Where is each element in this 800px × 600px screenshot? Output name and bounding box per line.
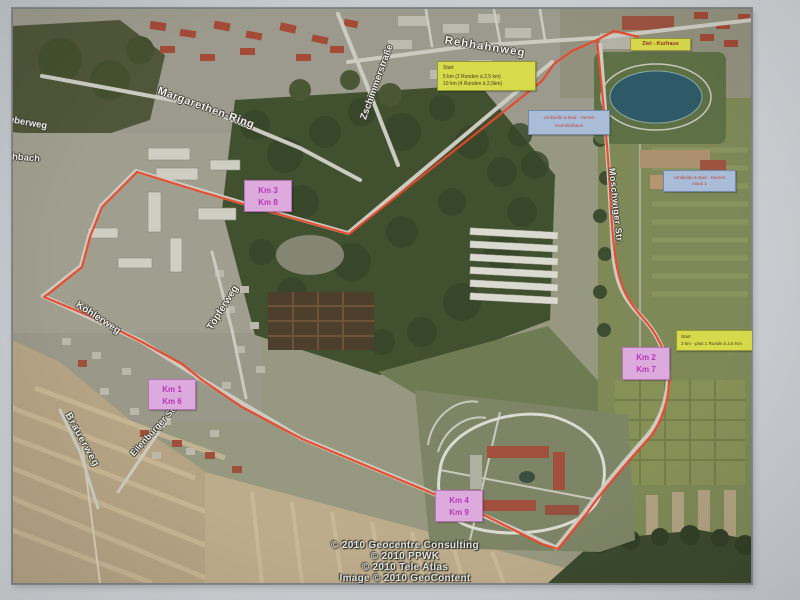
start-label-3km: Start 3 km - plus 1 Runde à 2,5 Km xyxy=(676,330,752,351)
km-marker-line: Km 8 xyxy=(245,197,291,209)
changing-room-women-label: Umkleide & Bad - Damen Haus 1 xyxy=(663,170,736,192)
km-marker-1-6: Km 1 Km 6 xyxy=(148,379,196,410)
copyright-line: Image © 2010 GeoContent xyxy=(285,573,525,584)
map-print: Rehhahnweg Margarethen-Ring Zschimmerstr… xyxy=(12,8,752,584)
km-marker-line: Km 2 xyxy=(623,352,669,364)
start-label-5km: 5 km (2 Runden à 2,5 km) xyxy=(443,74,535,81)
km-marker-line: Km 7 xyxy=(623,364,669,376)
aerial-imagery xyxy=(12,8,752,584)
photo-background: Rehhahnweg Margarethen-Ring Zschimmerstr… xyxy=(0,0,800,600)
km-marker-2-7: Km 2 Km 7 xyxy=(622,347,670,380)
km-marker-line: Km 3 xyxy=(245,185,291,197)
changing-room-men-label: Umkleide & Bad - Herren Kurmittelhaus xyxy=(528,110,610,135)
copyright-line: © 2010 Tele Atlas xyxy=(285,562,525,573)
km-marker-line: Km 1 xyxy=(149,384,195,396)
changing-room-men-line2: Kurmittelhaus xyxy=(529,123,609,129)
km-marker-line: Km 9 xyxy=(436,507,482,519)
km-marker-line: Km 6 xyxy=(149,396,195,408)
start-label-title: Start xyxy=(443,65,535,72)
km-marker-line: Km 4 xyxy=(436,495,482,507)
km-marker-3-8: Km 3 Km 8 xyxy=(244,180,292,212)
copyright-line: © 2010 PPWK xyxy=(285,551,525,562)
street-label-hbach-partial: hbach xyxy=(12,152,40,165)
start-label-10km: 10 km (4 Runden à 2,5km) xyxy=(443,81,535,88)
km-marker-4-9: Km 4 Km 9 xyxy=(435,490,483,522)
copyright-notice: © 2010 Geocentre Consulting © 2010 PPWK … xyxy=(285,540,525,584)
changing-room-women-line2: Haus 1 xyxy=(664,181,735,187)
copyright-line: © 2010 Geocentre Consulting xyxy=(285,540,525,551)
start-label-main: Start 5 km (2 Runden à 2,5 km) 10 km (4 … xyxy=(437,61,536,91)
changing-room-men-line1: Umkleide & Bad - Herren xyxy=(529,115,609,121)
finish-label-kurhaus: Ziel - Kurhaus xyxy=(630,38,691,51)
start-3km-detail: 3 km - plus 1 Runde à 2,5 Km xyxy=(681,341,752,348)
